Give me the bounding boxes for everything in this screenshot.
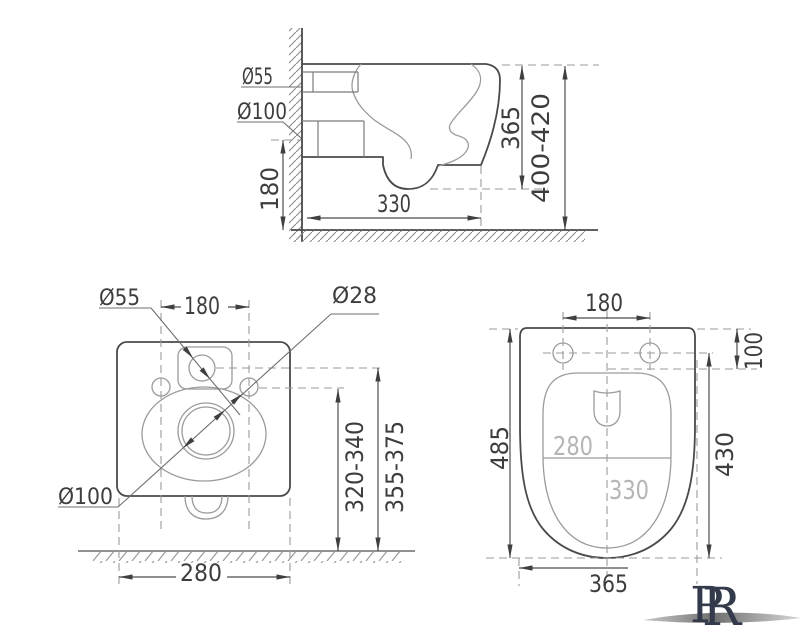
outlet-hole-inner xyxy=(182,407,230,455)
plan-total-width-label: 365 xyxy=(589,570,628,598)
rear-view: Ø55 Ø28 Ø100 180 280 320-340 355-375 xyxy=(58,284,415,588)
outlet-pipe-side xyxy=(302,121,364,157)
rear-inlet-height-label: 355-375 xyxy=(381,421,409,513)
plan-bolt-offset-label: 100 xyxy=(740,332,768,370)
bowl-inner-curve-left xyxy=(352,64,411,159)
side-body-height-label: 365 xyxy=(497,106,525,150)
plan-bolt-spacing-label: 180 xyxy=(585,289,623,317)
technical-drawing-sheet: Ø55 Ø100 180 330 365 400-420 xyxy=(0,0,808,640)
side-inlet-diameter-label: Ø55 xyxy=(242,65,273,90)
toilet-side-profile xyxy=(302,64,500,189)
bottom-tab-inner xyxy=(192,496,222,513)
brand-logo: P R xyxy=(643,576,801,638)
rear-outlet-height-label: 320-340 xyxy=(341,421,369,513)
floor-hatch xyxy=(293,231,585,242)
rear-bolt-diameter-label: Ø28 xyxy=(332,284,377,309)
outlet-hole-outer xyxy=(178,403,234,459)
side-outlet-height-label: 180 xyxy=(256,167,284,211)
rear-inlet-diameter-label: Ø55 xyxy=(99,286,140,311)
bowl-inner-curve-right xyxy=(439,64,481,166)
rear-body-width-label: 280 xyxy=(180,559,222,587)
plan-bowl-width-label: 280 xyxy=(553,432,593,462)
plan-total-length-label: 485 xyxy=(486,426,514,470)
rear-floor-hatch xyxy=(90,552,405,563)
side-outlet-diameter-label: Ø100 xyxy=(237,100,287,125)
wall-hatch xyxy=(289,28,302,242)
rear-outlet-diameter-label: Ø100 xyxy=(58,485,113,510)
side-depth-label: 330 xyxy=(377,190,411,218)
rear-inlet-leader-diag xyxy=(151,308,240,415)
plan-view: 180 100 485 430 280 330 365 xyxy=(486,289,768,598)
plan-bowl-length-label: 330 xyxy=(609,476,649,506)
plan-bolt-to-front-label: 430 xyxy=(711,432,739,477)
tank-body-outline xyxy=(117,342,290,496)
logo-letter-r: R xyxy=(702,578,743,638)
side-install-height-label: 400-420 xyxy=(527,93,555,203)
inlet-pipe-side xyxy=(302,72,358,92)
rear-bolt-spacing-label: 180 xyxy=(184,292,220,320)
side-view: Ø55 Ø100 180 330 365 400-420 xyxy=(237,28,599,242)
